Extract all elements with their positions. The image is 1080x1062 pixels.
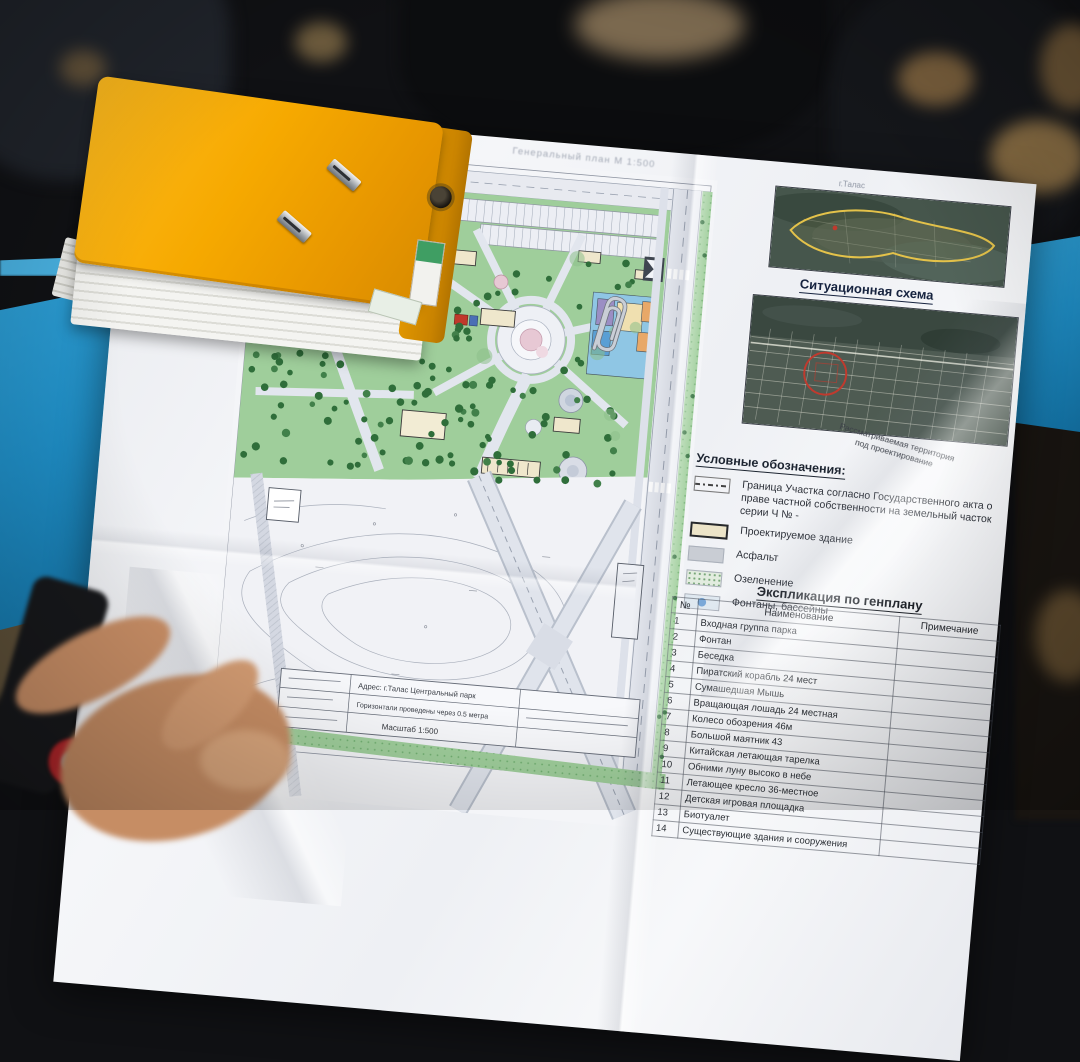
explication-section: Экспликация по генплану №НаименованиеПри… xyxy=(651,576,1006,865)
knuckle-highlight xyxy=(200,730,290,790)
autumn-leaves xyxy=(898,52,974,106)
autumn-leaves xyxy=(295,22,347,62)
legend-symbol-asphalt xyxy=(687,546,724,564)
situational-schema-image xyxy=(742,294,1019,447)
yellow-binder xyxy=(62,76,491,398)
explication-table: №НаименованиеПримечание1Входная группа п… xyxy=(651,596,1001,865)
survey-square-marker xyxy=(266,488,301,523)
blue-kiosk xyxy=(469,315,478,326)
legend-symbol-boundary xyxy=(694,476,731,494)
legend-item-label: Проектируемое здание xyxy=(740,525,854,548)
city-boundary-aerial-image xyxy=(768,186,1011,288)
city-overview-caption: г.Талас xyxy=(838,179,865,190)
legend-item-label: Асфальт xyxy=(736,549,779,565)
legend-symbol-building xyxy=(689,522,728,540)
foreground-hand xyxy=(0,560,320,810)
legend-title: Условные обозначения: xyxy=(696,451,847,480)
